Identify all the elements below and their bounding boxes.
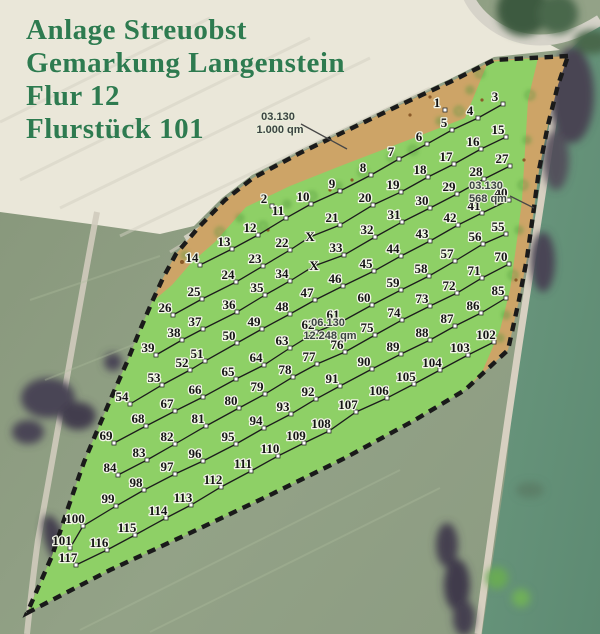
tree-number: 27 xyxy=(496,151,510,166)
tree-marker xyxy=(112,441,116,445)
tree-number: 55 xyxy=(492,219,506,234)
tree-marker xyxy=(338,189,342,193)
tree-number: 93 xyxy=(277,399,291,414)
tree-number: 58 xyxy=(415,261,429,276)
tree-marker xyxy=(145,458,149,462)
tree-number: 25 xyxy=(188,284,202,299)
tree-number: 34 xyxy=(276,266,290,281)
tree-marker xyxy=(180,338,184,342)
tree-marker xyxy=(338,223,342,227)
tree-number: 100 xyxy=(65,511,85,526)
tree-marker xyxy=(289,412,293,416)
tree-number: 80 xyxy=(225,393,238,408)
tree-number: 69 xyxy=(100,428,114,443)
tree-number: 65 xyxy=(222,364,236,379)
tree-number: 117 xyxy=(59,550,78,565)
tree-number: 105 xyxy=(396,369,416,384)
tree-marker xyxy=(288,312,292,316)
tree-number: 56 xyxy=(469,229,483,244)
tree-number: 110 xyxy=(261,441,280,456)
tree-number: 23 xyxy=(249,251,263,266)
tree-number: 35 xyxy=(251,280,265,295)
tree-number: 75 xyxy=(361,320,375,335)
tree-number: 39 xyxy=(142,340,156,355)
tree-marker xyxy=(507,198,511,202)
tree-number: 103 xyxy=(450,340,470,355)
tree-number: 95 xyxy=(222,429,236,444)
tree-marker xyxy=(234,280,238,284)
plan-title: Anlage Streuobst Gemarkung Langenstein F… xyxy=(26,14,345,146)
tree-marker xyxy=(201,459,205,463)
tree-marker xyxy=(234,377,238,381)
tree-marker xyxy=(452,162,456,166)
tree-marker xyxy=(201,327,205,331)
tree-number: 92 xyxy=(302,384,315,399)
tree-number: 6 xyxy=(416,129,423,144)
tree-number: 86 xyxy=(467,298,481,313)
tree-marker xyxy=(372,269,376,273)
tree-number: 52 xyxy=(176,355,189,370)
tree-number: 72 xyxy=(443,278,456,293)
tree-marker xyxy=(338,384,342,388)
tree-marker xyxy=(456,223,460,227)
tree-number: 16 xyxy=(467,134,481,149)
tree-marker xyxy=(504,135,508,139)
tree-number: 45 xyxy=(360,256,374,271)
tree-marker xyxy=(504,232,508,236)
tree-number: 111 xyxy=(234,456,252,471)
tree-number: 46 xyxy=(329,271,343,286)
tree-number: 31 xyxy=(388,207,401,222)
tree-marker xyxy=(173,442,177,446)
unplanted-x-mark: X xyxy=(309,258,319,273)
tree-marker xyxy=(508,164,512,168)
tree-marker xyxy=(114,504,118,508)
tree-marker xyxy=(427,274,431,278)
tree-number: 20 xyxy=(359,190,372,205)
tree-number: 96 xyxy=(189,446,203,461)
tree-marker xyxy=(173,409,177,413)
tree-number: 49 xyxy=(248,314,262,329)
tree-number: 8 xyxy=(360,160,367,175)
tree-marker xyxy=(116,473,120,477)
tree-number: 82 xyxy=(161,429,174,444)
tree-number: 30 xyxy=(416,193,429,208)
tree-marker xyxy=(476,116,480,120)
tree-marker xyxy=(425,142,429,146)
tree-marker xyxy=(479,311,483,315)
tree-number: 26 xyxy=(159,300,173,315)
tree-marker xyxy=(314,397,318,401)
tree-marker xyxy=(262,426,266,430)
tree-marker xyxy=(288,279,292,283)
tree-number: 94 xyxy=(250,413,264,428)
tree-number: 89 xyxy=(387,339,401,354)
tree-marker xyxy=(428,206,432,210)
main-parcel-label-code: 06.130 xyxy=(311,317,345,329)
tree-number: 108 xyxy=(311,416,331,431)
tree-number: 101 xyxy=(52,533,72,548)
tree-marker xyxy=(400,318,404,322)
tree-number: 33 xyxy=(330,240,344,255)
tree-number: 9 xyxy=(329,176,336,191)
tree-number: 107 xyxy=(338,397,358,412)
tree-number: 90 xyxy=(358,354,371,369)
tree-number: 24 xyxy=(222,267,236,282)
tree-number: 19 xyxy=(387,177,401,192)
tree-marker xyxy=(173,472,177,476)
tree-marker xyxy=(428,338,432,342)
tree-marker xyxy=(260,327,264,331)
tree-number: 13 xyxy=(218,234,232,249)
tree-marker xyxy=(501,102,505,106)
tree-marker xyxy=(235,341,239,345)
tree-marker xyxy=(504,296,508,300)
tree-marker xyxy=(200,297,204,301)
tree-marker xyxy=(481,242,485,246)
tree-number: 1 xyxy=(434,95,441,110)
tree-number: 67 xyxy=(161,396,175,411)
tree-marker xyxy=(369,173,373,177)
tree-marker xyxy=(507,262,511,266)
tree-marker xyxy=(397,157,401,161)
tree-marker xyxy=(171,313,175,317)
tree-number: 44 xyxy=(387,241,401,256)
tree-number: 3 xyxy=(492,89,499,104)
tree-number: 98 xyxy=(130,475,144,490)
tree-number: 17 xyxy=(440,149,454,164)
site-plan-page: 123456789101112131415161718192021X222324… xyxy=(0,0,600,634)
tree-number: 63 xyxy=(276,333,290,348)
tree-marker xyxy=(154,353,158,357)
tree-marker xyxy=(370,303,374,307)
tree-number: 12 xyxy=(244,220,257,235)
tree-number: 104 xyxy=(422,355,442,370)
tree-marker xyxy=(235,310,239,314)
tree-number: 4 xyxy=(467,103,474,118)
title-line-2: Gemarkung Langenstein xyxy=(26,47,345,80)
tree-number: 78 xyxy=(279,362,293,377)
tree-number: 79 xyxy=(251,379,265,394)
tree-marker xyxy=(370,367,374,371)
tree-marker xyxy=(313,298,317,302)
tree-number: 68 xyxy=(132,411,146,426)
tree-number: 28 xyxy=(470,164,484,179)
tree-number: 18 xyxy=(414,162,428,177)
tree-marker xyxy=(288,248,292,252)
tree-marker xyxy=(343,350,347,354)
tree-marker xyxy=(399,352,403,356)
tree-marker xyxy=(453,259,457,263)
tree-number: 84 xyxy=(104,460,118,475)
tree-marker xyxy=(450,128,454,132)
title-line-1: Anlage Streuobst xyxy=(26,14,345,47)
tree-marker xyxy=(443,108,447,112)
tree-marker xyxy=(428,304,432,308)
tree-marker xyxy=(480,211,484,215)
tree-marker xyxy=(315,362,319,366)
tree-marker xyxy=(144,424,148,428)
tree-number: 57 xyxy=(441,246,455,261)
tree-number: 53 xyxy=(148,370,162,385)
tree-marker xyxy=(455,192,459,196)
tree-number: 15 xyxy=(492,122,506,137)
tree-marker xyxy=(373,235,377,239)
tree-number: 37 xyxy=(189,314,203,329)
tree-number: 2 xyxy=(261,191,268,206)
tree-marker xyxy=(261,264,265,268)
main-parcel-label-area: 12.248 qm xyxy=(303,330,356,342)
tree-marker xyxy=(455,291,459,295)
tree-number: 22 xyxy=(276,235,289,250)
tree-marker xyxy=(262,363,266,367)
tree-number: 71 xyxy=(468,263,481,278)
tree-number: 81 xyxy=(192,411,205,426)
tree-number: 74 xyxy=(388,305,402,320)
tree-number: 106 xyxy=(369,383,389,398)
tree-marker xyxy=(201,395,205,399)
tree-marker xyxy=(453,324,457,328)
tree-number: 59 xyxy=(387,275,401,290)
title-line-3: Flur 12 xyxy=(26,80,345,113)
tree-marker xyxy=(128,402,132,406)
tree-marker xyxy=(263,293,267,297)
east-strip-label-code: 03.130 xyxy=(469,180,503,192)
tree-number: 36 xyxy=(223,297,237,312)
tree-marker xyxy=(198,263,202,267)
tree-number: 102 xyxy=(476,327,496,342)
tree-number: 38 xyxy=(168,325,182,340)
tree-number: 42 xyxy=(444,210,457,225)
tree-number: 10 xyxy=(297,189,310,204)
tree-number: 66 xyxy=(189,382,203,397)
tree-number: 115 xyxy=(118,520,137,535)
tree-number: 7 xyxy=(388,144,395,159)
tree-marker xyxy=(341,284,345,288)
tree-number: 77 xyxy=(303,349,317,364)
tree-number: 48 xyxy=(276,299,290,314)
tree-number: 83 xyxy=(133,445,147,460)
tree-number: 29 xyxy=(443,179,457,194)
tree-marker xyxy=(399,190,403,194)
tree-number: 88 xyxy=(416,325,430,340)
tree-number: 43 xyxy=(416,226,430,241)
tree-number: 14 xyxy=(186,250,200,265)
tree-marker xyxy=(142,488,146,492)
tree-number: 112 xyxy=(204,472,223,487)
tree-marker xyxy=(428,239,432,243)
unplanted-x-mark: X xyxy=(305,229,315,244)
tree-number: 109 xyxy=(286,428,306,443)
tree-marker xyxy=(284,216,288,220)
tree-marker xyxy=(309,202,313,206)
tree-number: 73 xyxy=(416,291,430,306)
tree-number: 97 xyxy=(161,459,175,474)
tree-number: 99 xyxy=(102,491,116,506)
tree-number: 70 xyxy=(495,249,508,264)
tree-marker xyxy=(479,147,483,151)
tree-marker xyxy=(234,442,238,446)
tree-number: 21 xyxy=(326,210,339,225)
tree-marker xyxy=(291,375,295,379)
tree-marker xyxy=(204,424,208,428)
tree-marker xyxy=(399,288,403,292)
tree-marker xyxy=(426,175,430,179)
tree-number: 5 xyxy=(441,115,448,130)
tree-number: 47 xyxy=(301,285,315,300)
tree-number: 91 xyxy=(326,371,339,386)
tree-number: 50 xyxy=(223,328,236,343)
tree-marker xyxy=(399,254,403,258)
tree-number: 51 xyxy=(191,346,204,361)
tree-marker xyxy=(237,406,241,410)
tree-marker xyxy=(373,333,377,337)
tree-marker xyxy=(371,203,375,207)
tree-marker xyxy=(256,233,260,237)
tree-marker xyxy=(230,247,234,251)
tree-marker xyxy=(342,253,346,257)
tree-number: 116 xyxy=(90,535,109,550)
tree-number: 114 xyxy=(149,503,168,518)
tree-marker xyxy=(263,392,267,396)
east-strip-label-area: 568 qm xyxy=(469,193,507,205)
tree-number: 32 xyxy=(361,222,374,237)
tree-number: 11 xyxy=(272,203,284,218)
tree-marker xyxy=(160,383,164,387)
tree-number: 60 xyxy=(358,290,371,305)
tree-number: 113 xyxy=(174,490,193,505)
tree-number: 54 xyxy=(116,389,130,404)
tree-marker xyxy=(288,346,292,350)
tree-number: 87 xyxy=(441,311,455,326)
tree-marker xyxy=(188,368,192,372)
tree-number: 85 xyxy=(492,283,506,298)
tree-marker xyxy=(480,276,484,280)
tree-marker xyxy=(400,220,404,224)
tree-marker xyxy=(203,359,207,363)
title-line-4: Flurstück 101 xyxy=(26,113,345,146)
tree-number: 64 xyxy=(250,350,264,365)
